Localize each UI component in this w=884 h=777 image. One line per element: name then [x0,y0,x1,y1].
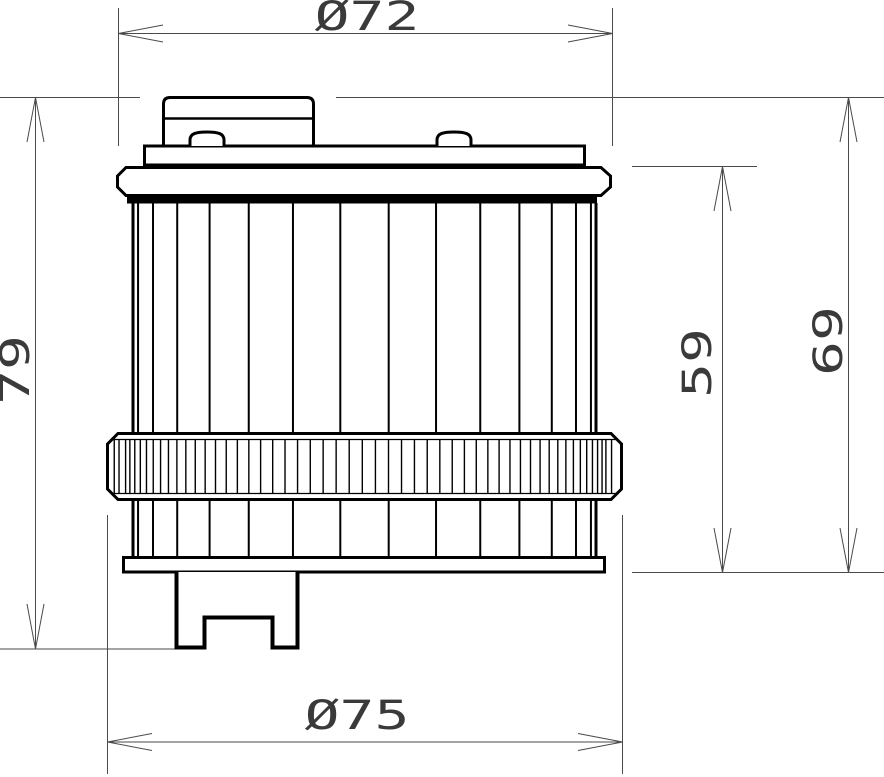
seal-band [127,196,597,204]
mounting-plate [145,146,585,165]
label-bottom-diameter: Ø75 [305,696,410,736]
label-cap-to-base-height: 69 [809,306,849,376]
filter-pleats-upper [133,203,596,434]
rivet-right [437,132,471,146]
label-top-diameter: Ø72 [315,0,420,37]
grip-nut-band [108,434,622,500]
filter-pleats-lower [133,500,596,558]
filter-outline [108,98,622,648]
label-overall-height: 79 [0,335,36,405]
top-cap [164,98,314,147]
top-flange [118,168,611,196]
filter-drawing [0,0,884,777]
rivet-left [190,132,224,146]
base-plate [124,558,605,573]
thread-fitting [177,572,298,648]
label-flange-to-base-height: 59 [678,328,718,398]
technical-drawing-canvas: Ø72 Ø75 79 59 69 [0,0,884,777]
